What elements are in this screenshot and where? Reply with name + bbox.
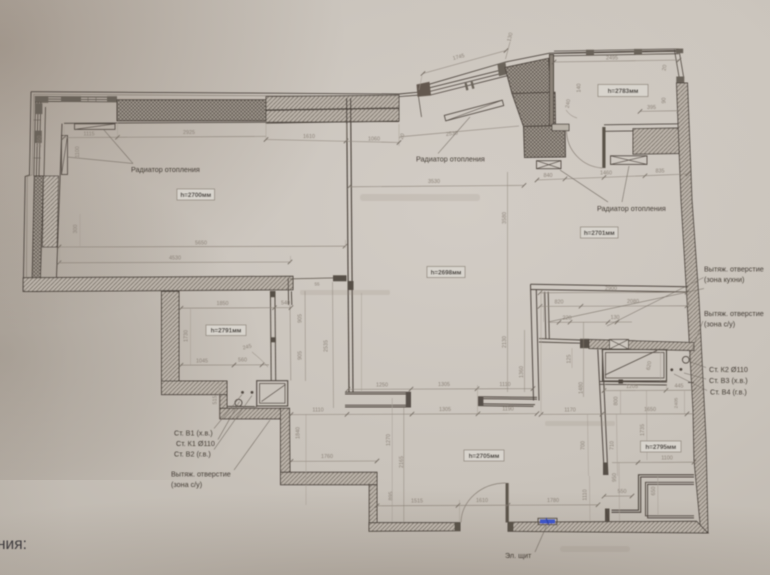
svg-text:395: 395 xyxy=(647,105,656,111)
svg-text:2495: 2495 xyxy=(606,56,618,62)
svg-text:4530: 4530 xyxy=(169,256,181,262)
svg-text:2165: 2165 xyxy=(399,456,405,468)
svg-text:1610: 1610 xyxy=(476,498,488,504)
svg-text:1205: 1205 xyxy=(626,384,638,390)
svg-text:905: 905 xyxy=(298,314,304,323)
svg-text:1110: 1110 xyxy=(499,382,510,388)
svg-text:1115: 1115 xyxy=(83,131,94,137)
svg-text:2535: 2535 xyxy=(324,340,330,352)
svg-text:3580: 3580 xyxy=(502,212,508,224)
svg-text:(зона кухни): (зона кухни) xyxy=(704,275,744,284)
svg-text:130: 130 xyxy=(611,315,620,321)
svg-text:1170: 1170 xyxy=(564,408,576,414)
svg-text:h=2783мм: h=2783мм xyxy=(608,88,639,95)
svg-text:h=2701мм: h=2701мм xyxy=(584,230,615,237)
svg-text:1060: 1060 xyxy=(368,137,380,143)
svg-text:550: 550 xyxy=(618,489,627,495)
svg-text:Вытяж. отверстие: Вытяж. отверстие xyxy=(704,309,764,318)
svg-text:1780: 1780 xyxy=(547,498,559,504)
svg-text:1730: 1730 xyxy=(184,330,190,342)
svg-text:h=2705мм: h=2705мм xyxy=(469,453,500,460)
svg-text:560: 560 xyxy=(238,358,247,364)
svg-text:1250: 1250 xyxy=(376,383,388,389)
svg-text:1460: 1460 xyxy=(600,171,612,177)
svg-text:h=2698мм: h=2698мм xyxy=(431,269,462,276)
svg-text:540: 540 xyxy=(281,301,290,307)
svg-text:1050: 1050 xyxy=(37,136,43,148)
svg-text:800: 800 xyxy=(614,397,620,406)
svg-text:820: 820 xyxy=(555,299,564,305)
svg-text:1045: 1045 xyxy=(196,358,208,364)
svg-text:Ст. В1 (х.в.): Ст. В1 (х.в.) xyxy=(174,429,213,438)
svg-text:950: 950 xyxy=(612,473,618,482)
svg-text:Ст. В3 (х.в.): Ст. В3 (х.в.) xyxy=(709,376,748,385)
svg-text:1760: 1760 xyxy=(321,454,333,460)
svg-text:Радиатор отопления: Радиатор отопления xyxy=(416,155,485,164)
svg-text:1610: 1610 xyxy=(303,134,315,140)
svg-text:Ст. В2 (г.в.): Ст. В2 (г.в.) xyxy=(174,450,211,459)
svg-text:1270: 1270 xyxy=(386,434,392,446)
svg-text:Ст. В4 (г.в.): Ст. В4 (г.в.) xyxy=(710,388,747,397)
svg-text:1850: 1850 xyxy=(217,301,229,307)
svg-text:55: 55 xyxy=(314,282,320,287)
svg-text:3530: 3530 xyxy=(428,179,440,185)
svg-text:2405: 2405 xyxy=(674,397,680,408)
svg-text:1515: 1515 xyxy=(411,499,423,505)
svg-text:Ст. К1 Ø110: Ст. К1 Ø110 xyxy=(176,439,215,448)
svg-text:Вытяж. отверстие: Вытяж. отверстие xyxy=(171,470,231,479)
svg-text:2130: 2130 xyxy=(502,336,508,348)
svg-text:895: 895 xyxy=(389,492,395,501)
svg-text:515: 515 xyxy=(213,396,219,405)
svg-text:1650: 1650 xyxy=(644,407,656,413)
svg-text:(зона с/у): (зона с/у) xyxy=(171,480,202,489)
svg-text:(зона с/у): (зона с/у) xyxy=(704,320,735,329)
svg-text:300: 300 xyxy=(73,225,79,234)
svg-text:Вытяж. отверстие: Вытяж. отверстие xyxy=(704,265,764,274)
svg-text:Ст. К2 Ø110: Ст. К2 Ø110 xyxy=(709,365,748,374)
svg-text:445: 445 xyxy=(675,384,684,390)
svg-text:1305: 1305 xyxy=(439,407,451,413)
svg-text:1305: 1305 xyxy=(438,382,450,388)
svg-text:2530: 2530 xyxy=(446,131,459,138)
svg-text:h=2791мм: h=2791мм xyxy=(211,328,242,335)
svg-text:1840: 1840 xyxy=(296,427,302,439)
svg-text:1110: 1110 xyxy=(312,408,323,414)
svg-text:710: 710 xyxy=(610,441,616,450)
svg-text:905: 905 xyxy=(298,351,304,360)
svg-text:1360: 1360 xyxy=(519,366,525,378)
svg-text:5650: 5650 xyxy=(195,240,207,246)
svg-text:125: 125 xyxy=(567,355,573,364)
svg-text:840: 840 xyxy=(544,173,553,179)
svg-text:835: 835 xyxy=(656,169,665,175)
svg-text:ния:: ния: xyxy=(0,536,27,553)
svg-text:1100: 1100 xyxy=(661,456,673,462)
svg-text:140: 140 xyxy=(577,84,583,93)
svg-text:1110: 1110 xyxy=(583,489,589,500)
svg-text:1735: 1735 xyxy=(640,424,646,436)
svg-text:2925: 2925 xyxy=(183,130,195,136)
svg-text:h=2795мм: h=2795мм xyxy=(645,444,676,451)
svg-text:90: 90 xyxy=(662,98,668,104)
svg-text:650: 650 xyxy=(651,487,657,496)
svg-text:20: 20 xyxy=(662,64,669,71)
svg-text:Радиатор отопления: Радиатор отопления xyxy=(131,165,200,174)
svg-text:2900: 2900 xyxy=(605,286,617,292)
svg-text:Эл. щит: Эл. щит xyxy=(505,551,532,560)
svg-text:h=2700мм: h=2700мм xyxy=(180,192,211,199)
svg-text:1190: 1190 xyxy=(502,406,514,412)
svg-text:1100: 1100 xyxy=(75,146,81,158)
svg-text:Радиатор отопления: Радиатор отопления xyxy=(597,204,666,213)
svg-text:700: 700 xyxy=(581,441,587,450)
